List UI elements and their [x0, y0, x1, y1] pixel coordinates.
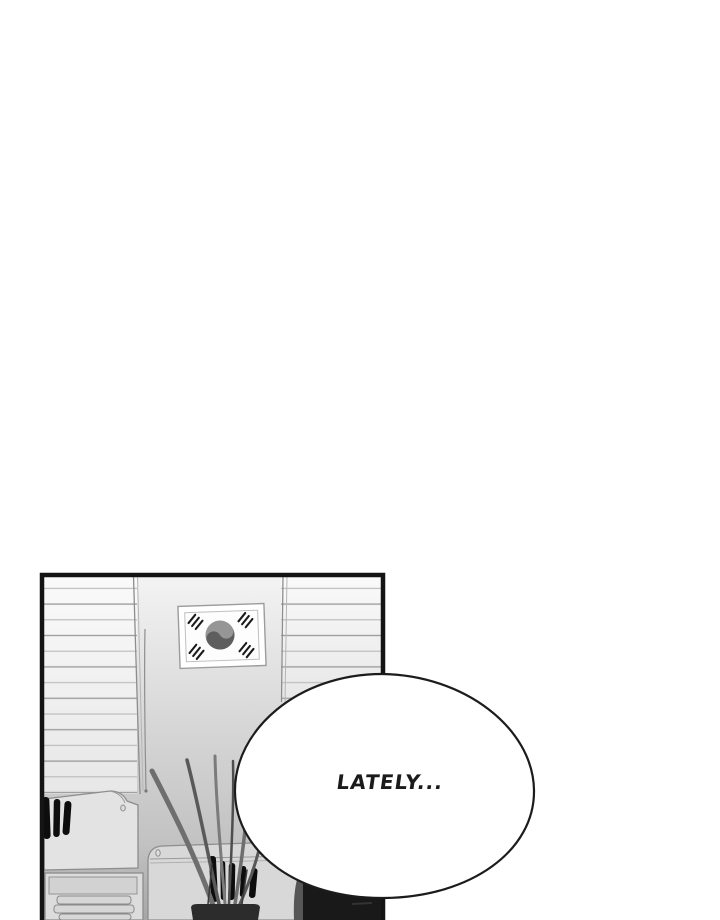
korean-flag-icon — [178, 603, 266, 668]
webtoon-page: LATELY... — [0, 0, 720, 920]
speech-bubble-text: LATELY... — [326, 769, 454, 795]
paper-shelf — [45, 873, 143, 920]
book-spines-left — [42, 797, 72, 839]
left-blinds — [43, 576, 143, 794]
plant-pot — [191, 904, 260, 920]
